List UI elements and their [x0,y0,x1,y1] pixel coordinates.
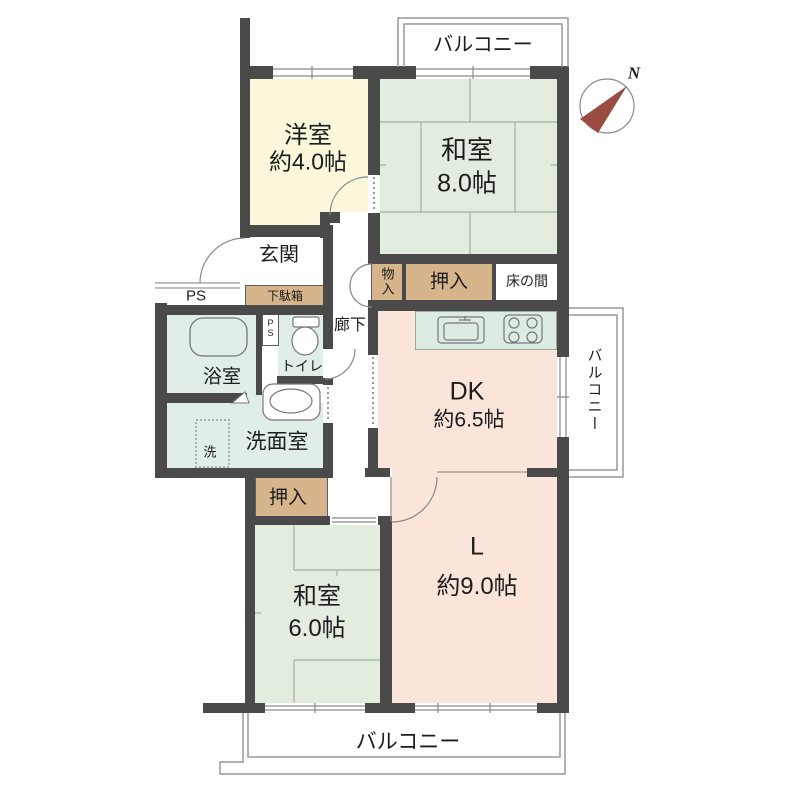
window-dk-right [557,357,569,437]
hallway-label: 廊下 [334,318,366,334]
tatami8-room-size: 8.0帖 [437,172,497,197]
door-opening-western [340,212,368,223]
room-tatami8 [380,78,557,254]
wall [380,516,392,712]
sliding-door-washroom [323,385,333,423]
sliding-door-dk [368,355,378,428]
wall [256,311,262,395]
balcony-top-label: バルコニー [433,35,533,55]
floor-plan: バルコニー N 洋室 約4.0帖 和室 8.0帖 玄関 PS 下駄箱 物入 押入… [0,0,800,800]
tatami6-room-size: 6.0帖 [288,617,345,641]
washer-label: 洗 [203,446,216,459]
toilet-label: トイレ [281,359,323,373]
living-room-name: L [470,535,484,560]
tatami6-room-name: 和室 [293,585,341,609]
shoe-cabinet-label: 下駄箱 [267,290,303,302]
entrance-label: 玄関 [259,245,299,265]
wall [245,516,255,713]
wall [323,225,333,309]
ps-outer-label: PS [186,289,206,304]
mono-ire-label: 物入 [381,267,394,297]
wall [527,468,567,477]
kitchen-counter [415,311,557,350]
wall [368,311,378,355]
wall [492,263,496,301]
wall [402,263,406,301]
wall [368,300,558,311]
tokonoma-label: 床の間 [506,274,548,288]
living-room-size: 約9.0帖 [436,575,517,599]
wall [240,225,325,237]
opening-western-tatami8 [368,175,380,213]
door-opening-toilet [323,349,333,378]
wall [365,468,390,477]
wall [240,18,250,70]
wall [240,66,250,238]
wall [368,428,378,468]
window-tatami8-top [416,66,530,79]
balcony-right-label: バルコニー [587,348,602,433]
balcony-bottom-label: バルコニー [356,732,461,753]
wall [155,303,167,478]
wall [155,305,333,315]
oshiire-top-label: 押入 [430,273,468,292]
north-arrow-icon [580,79,634,133]
bathroom-label: 浴室 [203,368,241,387]
entry-door-arc [200,238,245,283]
wall [165,393,247,403]
room-tatami6 [255,525,380,703]
window-living-bottom [415,703,537,713]
wall [323,423,333,468]
ps-inner-label: PS [266,318,275,338]
oshiire-bottom-label: 押入 [269,489,307,508]
window-western-top [273,66,353,79]
wall [323,378,333,385]
wall [368,254,558,264]
wall [155,468,333,478]
wall [368,66,380,258]
room-western-lower [250,212,322,225]
door-opening-tatami6 [330,516,378,525]
entry-door-opening [240,238,250,283]
western-room-size: 約4.0帖 [269,151,347,174]
dk-room-name: DK [450,380,485,405]
tatami8-room-name: 和室 [441,137,493,163]
north-label: N [628,65,640,82]
dk-room-size: 約6.5帖 [433,410,504,431]
western-room-name: 洋室 [284,124,332,148]
wall [323,305,333,349]
window-tatami6-bottom [265,703,365,713]
washroom-label: 洗面室 [246,432,309,453]
